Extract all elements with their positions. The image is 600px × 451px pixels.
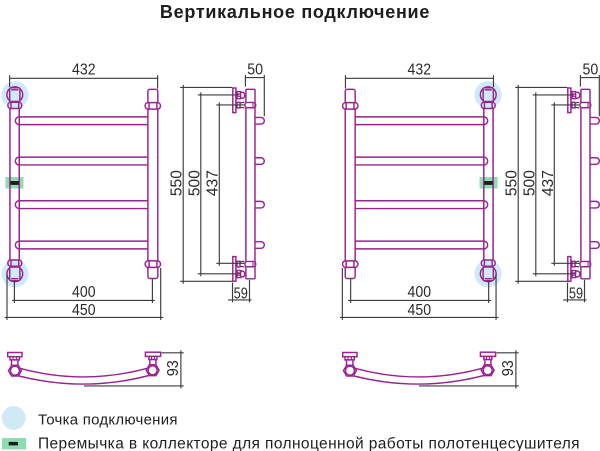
svg-text:432: 432 [72,62,96,79]
svg-text:50: 50 [583,62,599,79]
svg-text:550: 550 [504,170,521,196]
svg-text:500: 500 [522,170,539,196]
svg-text:59: 59 [569,285,583,302]
svg-text:Вертикальное подключение: Вертикальное подключение [160,2,430,22]
svg-text:59: 59 [234,285,248,302]
svg-text:Точка подключения: Точка подключения [38,411,178,428]
svg-text:450: 450 [408,302,432,319]
svg-text:450: 450 [72,302,96,319]
svg-text:Перемычка в коллекторе для пол: Перемычка в коллекторе для полноценной р… [38,436,580,451]
svg-text:500: 500 [186,170,203,196]
svg-text:437: 437 [205,170,222,196]
svg-text:400: 400 [408,284,432,301]
svg-text:550: 550 [168,170,185,196]
svg-text:437: 437 [540,170,557,196]
svg-text:93: 93 [165,360,182,376]
svg-text:93: 93 [500,360,517,376]
svg-text:432: 432 [408,62,432,79]
svg-text:50: 50 [247,62,263,79]
svg-text:400: 400 [72,284,96,301]
